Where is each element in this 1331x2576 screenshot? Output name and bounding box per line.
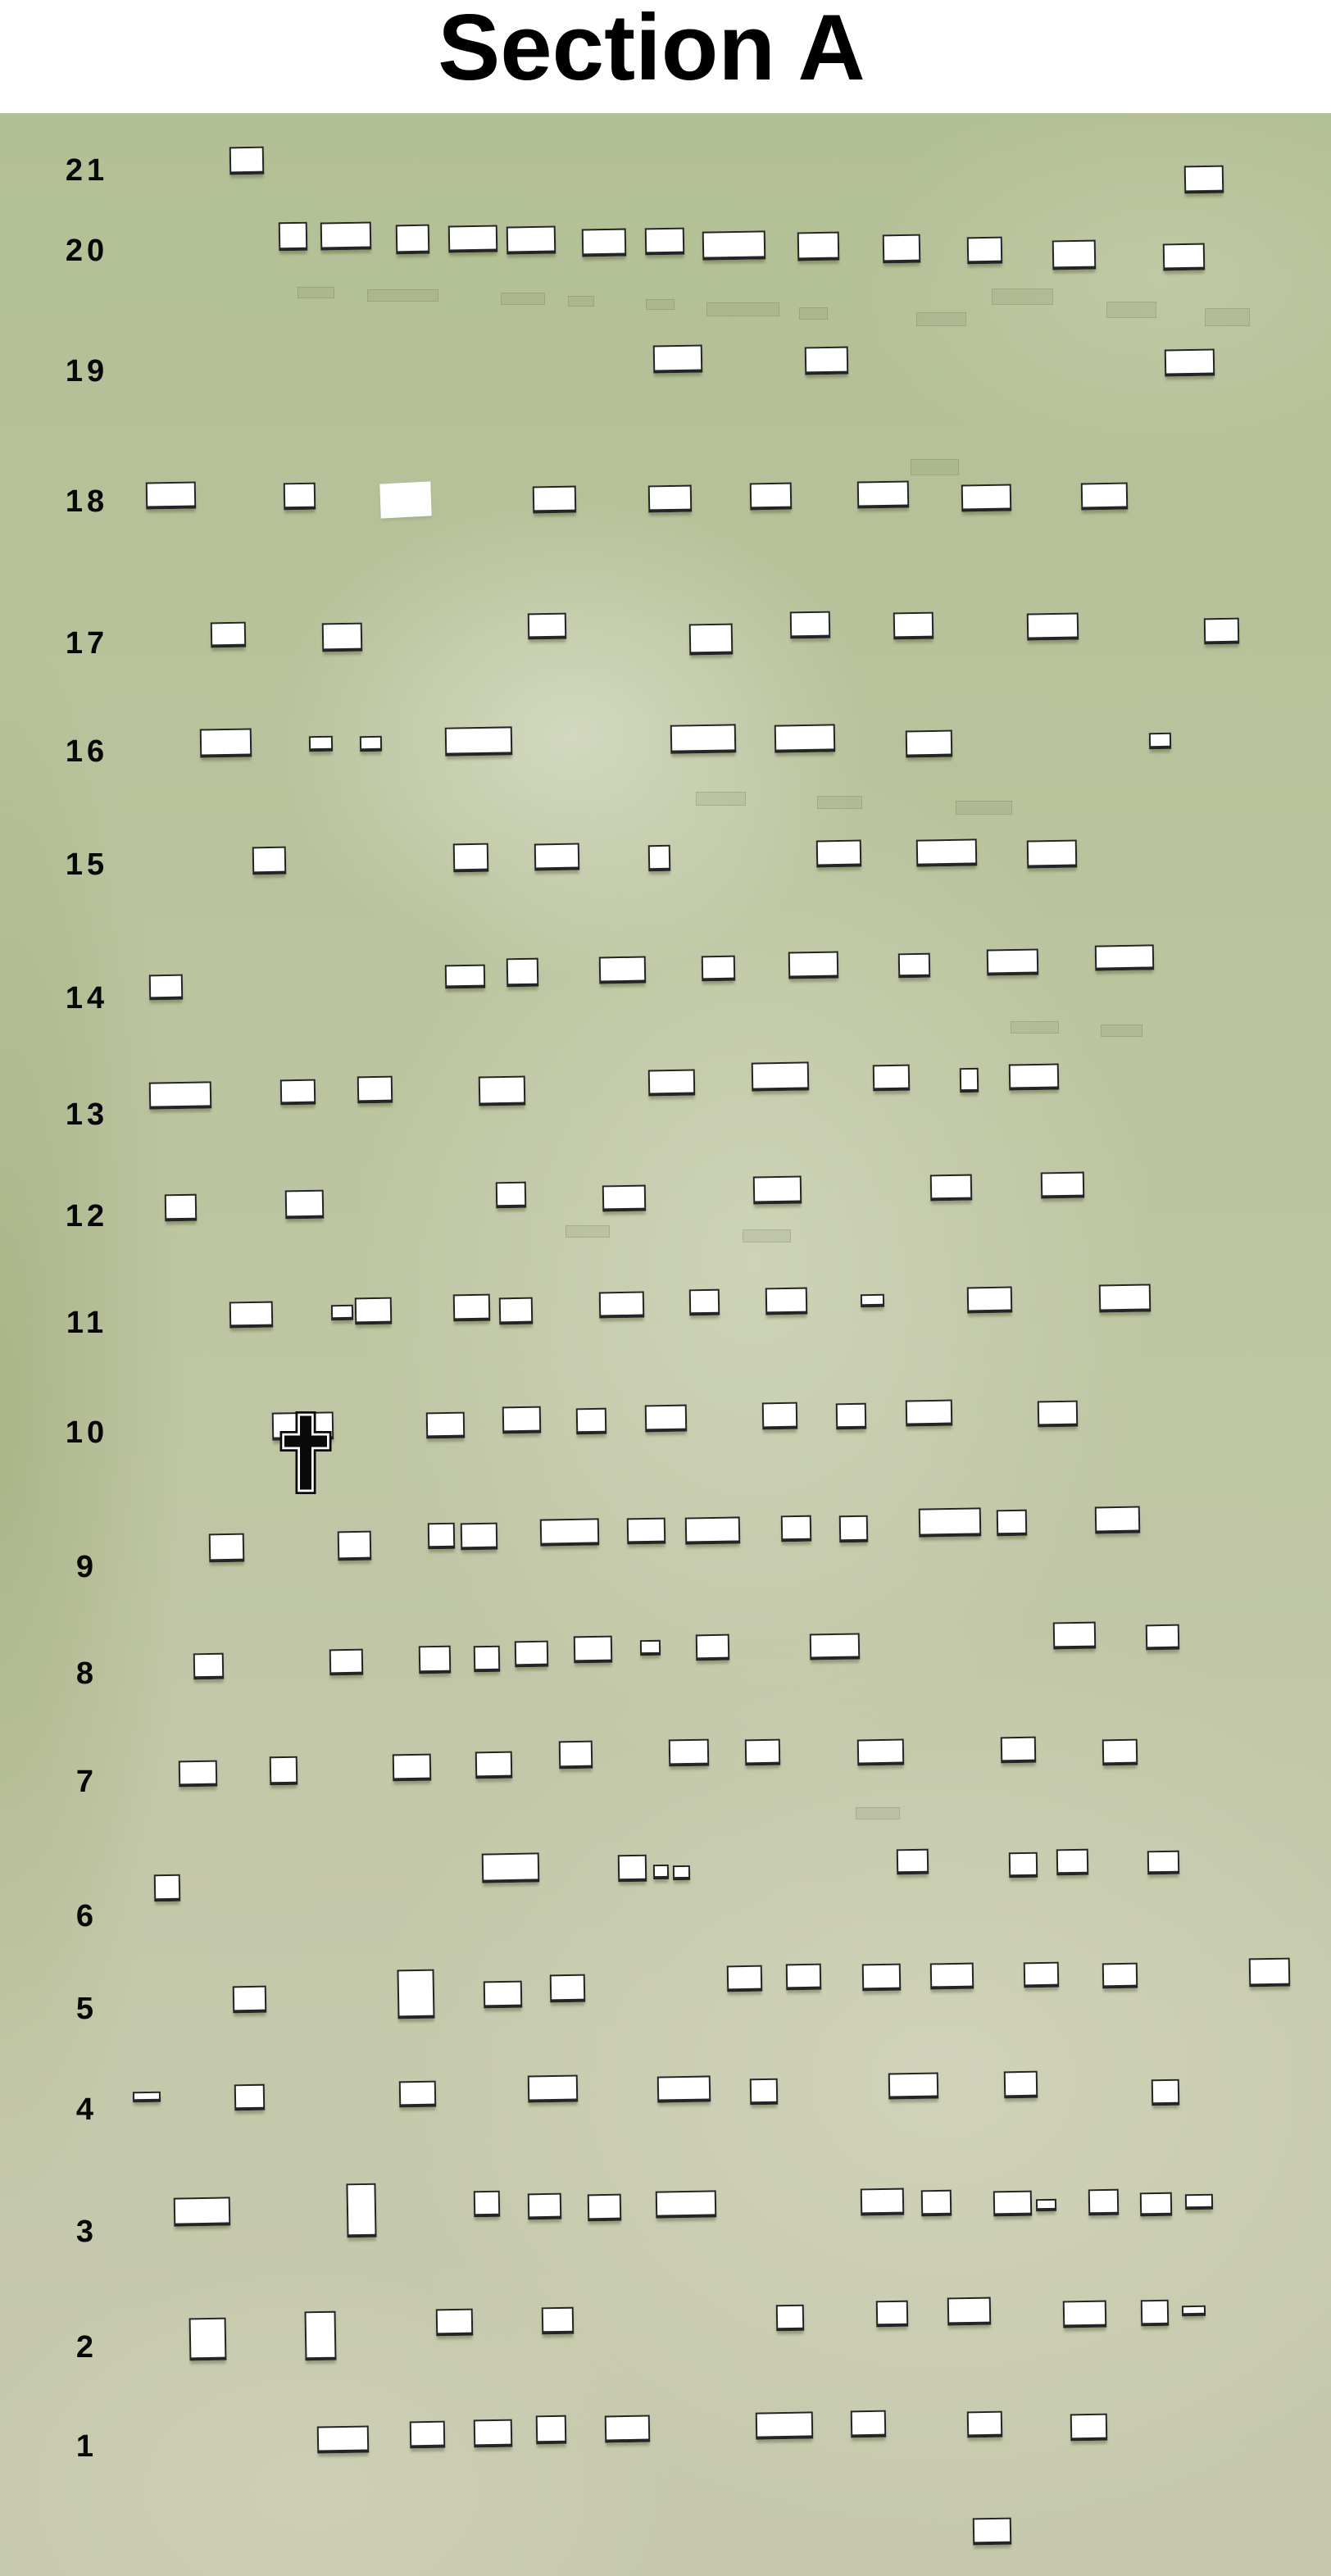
grave-plot xyxy=(355,1297,393,1325)
grave-plot xyxy=(189,2318,227,2361)
grave-plot xyxy=(1141,2300,1170,2327)
row-label-9: 9 xyxy=(46,1550,128,1585)
row-label-4: 4 xyxy=(46,2092,128,2128)
grave-plot xyxy=(453,843,489,873)
grave-plot xyxy=(1102,1739,1138,1766)
cross-icon xyxy=(276,1409,335,1497)
grave-plot xyxy=(528,613,567,640)
grave-plot xyxy=(419,1646,452,1674)
grave-plot xyxy=(285,1190,325,1220)
grave-plot xyxy=(930,1174,973,1202)
faded-plot-mark xyxy=(1106,302,1156,318)
row-label-10: 10 xyxy=(46,1415,128,1451)
grave-plot xyxy=(309,736,333,752)
grave-plot xyxy=(1102,1963,1138,1989)
grave-plot xyxy=(790,611,831,639)
grave-plot xyxy=(234,2084,266,2111)
grave-plot xyxy=(1027,612,1079,640)
grave-plot xyxy=(861,1294,884,1308)
row-label-12: 12 xyxy=(46,1199,128,1234)
grave-plot xyxy=(445,965,485,989)
grave-plot xyxy=(576,1408,607,1435)
grave-plot xyxy=(588,2194,622,2222)
grave-plot xyxy=(648,845,671,871)
grave-plot xyxy=(284,483,316,511)
row-label-5: 5 xyxy=(46,1992,128,2027)
row-label-6: 6 xyxy=(46,1899,128,1934)
faded-plot-mark xyxy=(916,312,966,326)
grave-plot xyxy=(897,1849,929,1875)
grave-plot xyxy=(906,1400,953,1427)
grave-plot xyxy=(149,1081,212,1109)
grave-plot xyxy=(499,1297,534,1325)
grave-plot xyxy=(893,612,934,640)
grave-plot xyxy=(876,2301,909,2328)
grave-plot xyxy=(1249,1958,1291,1988)
faded-plot-mark xyxy=(1101,1024,1142,1037)
grave-plot xyxy=(475,1751,513,1779)
grave-plot xyxy=(627,1518,666,1545)
grave-plot xyxy=(479,1076,526,1106)
grave-plot xyxy=(1024,1962,1060,1988)
grave-plot xyxy=(165,1194,198,1222)
grave-plot xyxy=(781,1515,812,1542)
grave-plot xyxy=(1140,2192,1173,2217)
grave-plot xyxy=(536,2415,567,2445)
grave-plot xyxy=(930,1963,974,1990)
row-label-8: 8 xyxy=(46,1656,128,1692)
grave-plot xyxy=(397,1969,434,2019)
grave-plot xyxy=(1146,1624,1180,1651)
grave-plot xyxy=(648,485,693,513)
grave-plot xyxy=(484,1981,523,2009)
grave-plot xyxy=(426,1412,466,1439)
grave-plot xyxy=(857,1739,905,1766)
grave-plot xyxy=(399,2081,437,2108)
row-label-11: 11 xyxy=(46,1306,128,1341)
grave-plot xyxy=(193,1653,225,1680)
grave-plot xyxy=(1070,2414,1108,2442)
grave-plot xyxy=(851,2410,887,2438)
grave-plot xyxy=(320,221,372,250)
grave-plot xyxy=(1185,2194,1213,2210)
grave-plot xyxy=(857,480,910,508)
grave-plot xyxy=(810,1633,861,1660)
grave-plot xyxy=(410,2421,446,2449)
grave-plot xyxy=(1095,944,1155,970)
row-label-1: 1 xyxy=(46,2429,128,2465)
grave-plot xyxy=(640,1640,661,1656)
grave-plot xyxy=(618,1855,647,1883)
grave-plot xyxy=(973,2518,1012,2546)
faded-plot-mark xyxy=(856,1807,900,1820)
grave-plot xyxy=(338,1531,372,1561)
faded-plot-mark xyxy=(367,289,438,302)
grave-plot xyxy=(448,225,498,252)
grave-plot xyxy=(862,1964,902,1992)
grave-plot xyxy=(482,1852,540,1883)
grave-plot xyxy=(653,1865,669,1879)
grave-plot xyxy=(762,1402,798,1430)
grave-plot xyxy=(1081,483,1129,511)
grave-plot xyxy=(1095,1506,1141,1534)
grave-plot xyxy=(542,2307,575,2335)
grave-plot xyxy=(1038,1401,1079,1428)
grave-plot xyxy=(861,2188,905,2216)
faded-plot-mark xyxy=(1205,308,1250,326)
grave-plot xyxy=(322,623,363,652)
grave-plot xyxy=(961,484,1012,511)
grave-plot xyxy=(229,1302,274,1329)
grave-plot xyxy=(727,1965,763,1992)
grave-plot xyxy=(528,2074,579,2102)
grave-plot xyxy=(174,2197,231,2226)
grave-plot xyxy=(1004,2071,1038,2099)
grave-plot xyxy=(673,1865,690,1880)
grave-plot xyxy=(280,1079,316,1106)
faded-plot-mark xyxy=(566,1225,610,1238)
grave-plot xyxy=(502,1406,542,1434)
grave-plot xyxy=(765,1288,808,1315)
grave-plot xyxy=(967,237,1003,265)
row-label-18: 18 xyxy=(46,484,128,520)
faded-plot-mark xyxy=(706,302,779,316)
grave-plot xyxy=(428,1523,456,1550)
grave-plot xyxy=(883,234,921,264)
grave-plot xyxy=(645,228,685,256)
grave-plot xyxy=(507,225,556,254)
faded-plot-mark xyxy=(1011,1021,1059,1034)
grave-plot xyxy=(906,730,953,758)
cemetery-section-map-page: Section A 212019181716151413121110987654… xyxy=(0,0,1331,2576)
grave-plot xyxy=(331,1305,353,1320)
grave-plot xyxy=(685,1516,741,1544)
row-label-19: 19 xyxy=(46,354,128,389)
grave-plot xyxy=(797,232,840,261)
grave-plot xyxy=(947,2297,992,2326)
grave-plot xyxy=(393,1754,432,1782)
grave-plot xyxy=(1099,1283,1152,1312)
grave-plot xyxy=(304,2311,336,2361)
grave-plot xyxy=(1053,1622,1097,1650)
grave-plot xyxy=(1152,2079,1180,2106)
grave-plot xyxy=(209,1533,245,1563)
grave-plot xyxy=(967,2411,1003,2438)
faded-plot-mark xyxy=(646,299,675,310)
grave-plot xyxy=(599,956,647,984)
grave-plot xyxy=(1009,1063,1060,1090)
grave-plot xyxy=(776,2305,805,2332)
grave-plot xyxy=(702,230,766,260)
grave-plot xyxy=(750,483,793,511)
grave-plot xyxy=(200,728,252,757)
grave-plot xyxy=(233,1986,267,2014)
grave-plot xyxy=(839,1515,869,1543)
grave-plot xyxy=(317,2425,370,2453)
grave-plot xyxy=(752,1061,810,1091)
grave-plot xyxy=(154,1874,181,1902)
grave-plot xyxy=(474,2191,501,2218)
grave-plot xyxy=(967,1287,1013,1314)
grave-plot xyxy=(756,2411,814,2439)
grave-plot xyxy=(656,2190,717,2218)
grave-plot xyxy=(1036,2199,1056,2211)
page-title: Section A xyxy=(0,2,1303,95)
faded-plot-mark xyxy=(298,287,334,298)
grave-plot xyxy=(599,1292,645,1319)
grave-plot xyxy=(888,2072,939,2099)
grave-plot xyxy=(279,222,308,252)
grave-plot xyxy=(133,2092,161,2103)
grave-plot xyxy=(1052,240,1097,270)
grave-plot xyxy=(461,1523,498,1551)
grave-plot xyxy=(1056,1849,1089,1876)
grave-plot xyxy=(605,2415,651,2443)
grave-plot xyxy=(805,347,849,375)
grave-plot xyxy=(836,1403,867,1430)
grave-plot xyxy=(540,1518,600,1546)
row-label-2: 2 xyxy=(46,2330,128,2365)
faded-plot-mark xyxy=(911,459,959,475)
grave-plot xyxy=(602,1185,647,1212)
grave-plot xyxy=(657,2075,711,2102)
grave-plot xyxy=(396,225,430,255)
row-label-17: 17 xyxy=(46,626,128,661)
grave-plot xyxy=(921,2190,952,2217)
grave-plot xyxy=(1041,1172,1085,1199)
grave-plot xyxy=(689,1289,720,1316)
grave-plot xyxy=(745,1739,781,1766)
faded-plot-mark xyxy=(956,801,1012,815)
grave-plot xyxy=(179,1760,218,1788)
grave-plot xyxy=(229,147,265,175)
grave-plot xyxy=(357,1076,393,1104)
row-label-13: 13 xyxy=(46,1097,128,1133)
grave-plot xyxy=(702,956,736,982)
grave-plot xyxy=(1182,2306,1206,2317)
row-label-15: 15 xyxy=(46,847,128,883)
grave-plot xyxy=(474,1646,501,1673)
grave-plot xyxy=(750,2079,779,2106)
grave-plot xyxy=(993,2191,1033,2217)
grave-plot xyxy=(453,1294,491,1322)
row-label-16: 16 xyxy=(46,734,128,770)
grave-plot xyxy=(496,1182,527,1209)
grave-plot xyxy=(919,1507,982,1537)
faded-plot-mark xyxy=(696,792,746,806)
grave-plot xyxy=(670,724,737,753)
grave-plot xyxy=(645,1405,688,1433)
grave-plot xyxy=(669,1739,710,1767)
grave-plot xyxy=(648,1070,696,1097)
grave-plot xyxy=(559,1741,593,1770)
grave-plot xyxy=(574,1636,613,1664)
grave-plot xyxy=(1204,618,1240,645)
grave-plot xyxy=(1184,166,1224,194)
grave-plot xyxy=(786,1964,822,1991)
grave-plot xyxy=(1063,2301,1107,2328)
grave-plot xyxy=(753,1175,802,1204)
grave-plot xyxy=(1147,1851,1180,1875)
grave-plot xyxy=(653,344,703,373)
grave-plot xyxy=(436,2309,474,2337)
faded-plot-mark xyxy=(817,796,862,809)
row-label-20: 20 xyxy=(46,234,128,269)
row-label-21: 21 xyxy=(46,153,128,189)
grave-plot xyxy=(689,624,734,656)
faded-plot-mark xyxy=(992,288,1053,305)
grave-plot xyxy=(1088,2189,1120,2216)
row-label-3: 3 xyxy=(46,2215,128,2250)
grave-plot xyxy=(507,958,539,988)
grave-plot xyxy=(1149,733,1171,749)
grave-plot xyxy=(1165,348,1215,376)
grave-plot xyxy=(149,975,184,1001)
grave-plot xyxy=(1027,839,1078,868)
grave-plot xyxy=(515,1641,549,1668)
grave-plot xyxy=(252,847,287,875)
grave-plot xyxy=(379,481,431,518)
grave-plot xyxy=(146,481,197,509)
faded-plot-mark xyxy=(568,296,594,307)
grave-plot xyxy=(270,1756,298,1786)
grave-plot xyxy=(582,229,627,257)
grave-plot xyxy=(1163,243,1206,271)
grave-plot xyxy=(873,1065,911,1092)
grave-plot xyxy=(346,2183,376,2238)
faded-plot-mark xyxy=(799,307,828,320)
grave-plot xyxy=(775,724,836,752)
faded-plot-mark xyxy=(743,1229,791,1243)
grave-plot xyxy=(987,948,1039,975)
grave-plot xyxy=(898,953,931,979)
grave-plot xyxy=(533,486,577,514)
grave-plot xyxy=(360,736,382,752)
grave-plot xyxy=(916,838,978,866)
grave-plot xyxy=(1009,1852,1038,1879)
grave-plot xyxy=(696,1634,730,1661)
row-label-14: 14 xyxy=(46,981,128,1016)
grave-plot xyxy=(534,843,580,871)
grave-plot xyxy=(997,1510,1028,1537)
grave-plot xyxy=(329,1649,364,1676)
row-label-7: 7 xyxy=(46,1765,128,1800)
grave-plot xyxy=(445,726,513,756)
grave-plot xyxy=(1001,1737,1037,1764)
grave-plot xyxy=(816,840,862,868)
grave-plot xyxy=(960,1068,979,1093)
grave-plot xyxy=(550,1974,586,2003)
grave-plot xyxy=(528,2193,562,2220)
grave-plot xyxy=(788,951,839,979)
faded-plot-mark xyxy=(501,293,545,305)
grave-plot xyxy=(211,622,247,648)
grave-plot xyxy=(474,2419,513,2448)
